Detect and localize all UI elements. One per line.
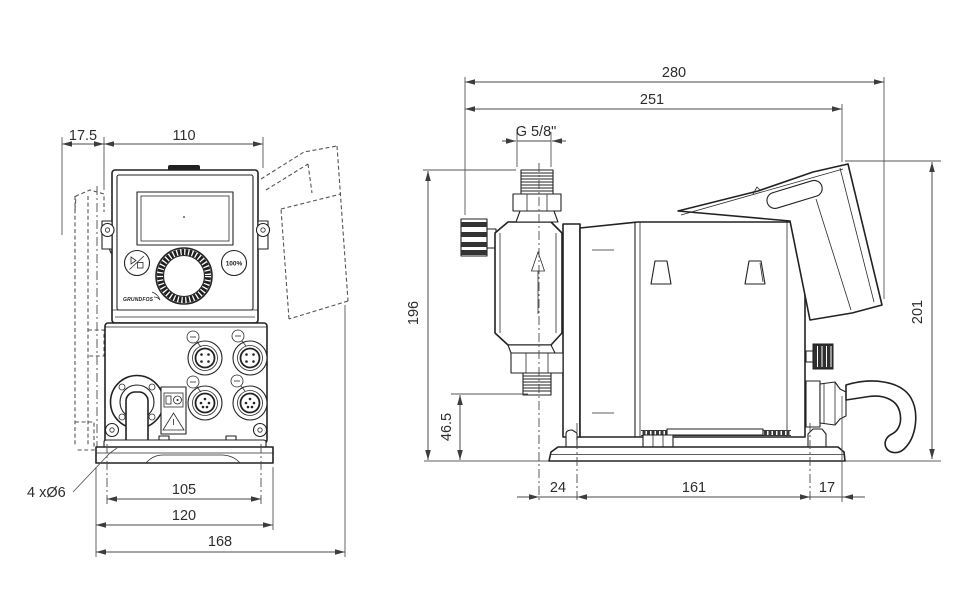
display-dot — [183, 216, 185, 218]
discharge-thread — [521, 173, 553, 191]
dim-hole-spacing: 105 — [172, 482, 196, 498]
side-view: 280 251 G 5/8" 196 201 46.5 — [406, 65, 941, 502]
info-label-plate — [161, 387, 186, 434]
dim-valve-to-front-hole: 24 — [550, 480, 566, 496]
full-capacity-button-label: 100% — [226, 261, 243, 268]
cable-gland — [806, 381, 846, 427]
dim-overall-length: 280 — [662, 65, 686, 81]
dim-base-hole-spacing: 161 — [682, 480, 706, 496]
signal-connector-socket-3[interactable] — [188, 386, 222, 420]
front-view: 100% GRUNDFOS — [27, 128, 348, 557]
grundfos-wordmark: GRUNDFOS — [123, 297, 154, 303]
adapter-backplate — [563, 224, 580, 437]
signal-connector-socket-1[interactable] — [188, 341, 222, 375]
dim-length-to-panel: 251 — [640, 92, 664, 108]
dosing-pump-dimensional-drawing: 100% GRUNDFOS — [0, 0, 976, 600]
dimensional-drawing-page: 100% GRUNDFOS — [0, 0, 976, 600]
ear-screw-right — [257, 224, 270, 237]
power-cable — [846, 381, 916, 453]
dim-suction-valve-height: 46.5 — [439, 413, 455, 441]
signal-connector-socket-4[interactable] — [233, 386, 267, 420]
suction-coupling-nut[interactable] — [511, 353, 563, 373]
discharge-valve — [513, 170, 561, 222]
signal-connector-socket-2[interactable] — [233, 341, 267, 375]
ear-screw-left — [101, 224, 114, 237]
dosing-head — [495, 222, 562, 345]
dim-height-to-connection: 196 — [406, 301, 422, 325]
mounting-hook-2 — [745, 261, 765, 284]
pump-housing-front: 100% GRUNDFOS — [101, 165, 270, 323]
dim-housing-width: 110 — [172, 128, 195, 144]
dim-overall-depth: 168 — [208, 534, 232, 550]
connection-housing-front — [105, 323, 267, 459]
vent-valve-knob[interactable] — [461, 219, 496, 256]
dim-base-width: 120 — [172, 508, 196, 524]
pump-body-side — [580, 222, 805, 437]
dim-connection-thread: G 5/8" — [516, 124, 557, 140]
dim-rear-hole-to-gland: 17 — [819, 480, 835, 496]
start-stop-button[interactable] — [125, 251, 150, 276]
corner-screw-right — [254, 424, 267, 437]
base-foot-front — [96, 440, 273, 463]
mounting-hook-1 — [651, 261, 671, 284]
corner-screw-left — [106, 424, 119, 437]
control-cube-phantom — [261, 146, 348, 319]
discharge-coupling-nut[interactable] — [513, 194, 561, 211]
dim-overall-height: 201 — [910, 300, 926, 324]
suction-valve — [508, 345, 563, 395]
rear-threaded-stub — [806, 344, 833, 369]
dim-bracket-depth: 17.5 — [69, 128, 97, 144]
capacity-adjustment-knob[interactable] — [156, 248, 212, 304]
mounting-holes-note: 4 xØ6 — [27, 485, 66, 501]
full-capacity-button[interactable]: 100% — [222, 251, 247, 276]
